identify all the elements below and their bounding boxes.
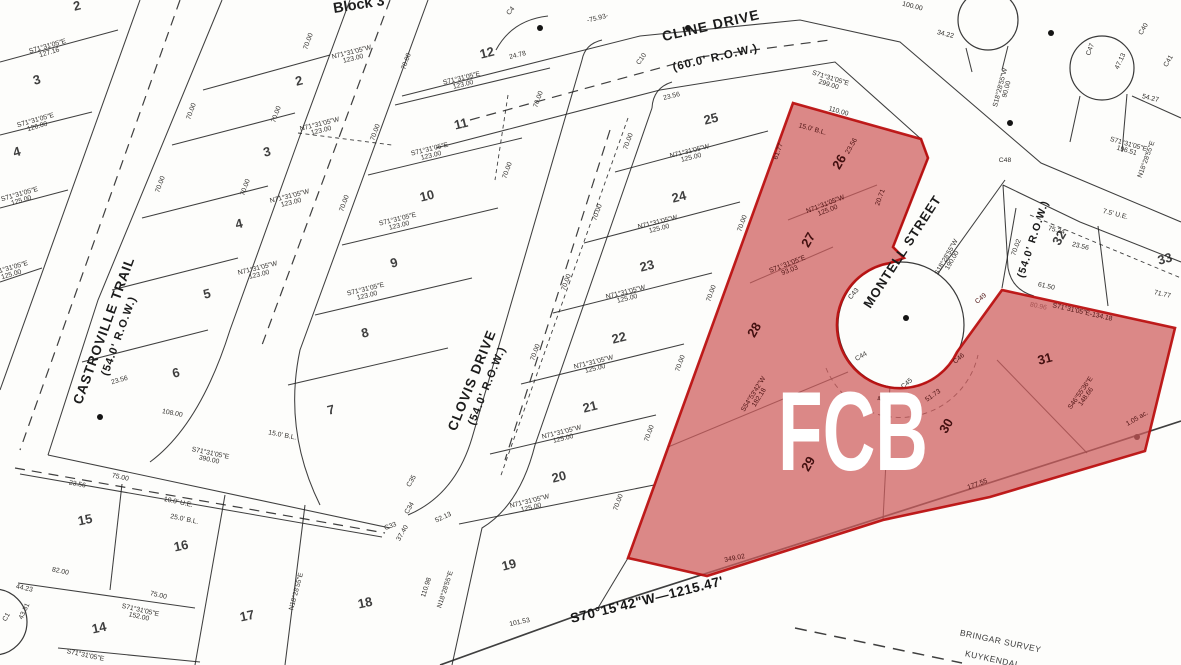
bearing-distance-label: 52.13 <box>434 511 453 525</box>
bearing-distance-label: S71°31'05"E123.00 <box>346 280 387 304</box>
lot-number: 17 <box>238 607 255 625</box>
bearing-distance-label: C47 <box>1085 42 1096 56</box>
cul-de-sac-bulb <box>1070 36 1134 100</box>
bearing-distance-label: S71°31'05"E126.00 <box>16 111 57 136</box>
bearing-distance-label: 70.00 <box>185 102 197 121</box>
bearing-distance-label: 7.5' U.E. <box>1102 208 1129 221</box>
lot-number: 20 <box>550 468 568 486</box>
lot-number: 12 <box>478 44 496 62</box>
bearing-distance-label: N18°28'55"E <box>287 571 305 611</box>
bearing-distance-label: S71°31'05"E152.00 <box>119 602 160 625</box>
bearing-distance-label: N71°31'05"W123.00 <box>269 187 312 211</box>
bearing-distance-label: 61.50 <box>1037 281 1055 291</box>
lot-number: 4 <box>234 215 245 231</box>
lot-number: 11 <box>452 115 469 133</box>
lot-number: 6 <box>171 364 182 380</box>
lot-boundary-line <box>966 48 972 72</box>
bearing-distance-label: N71°31'05"W125.00 <box>573 353 616 377</box>
lot-number: 2 <box>72 0 83 14</box>
bearing-distance-label: 70.00 <box>154 175 166 194</box>
bearing-distance-label: C10 <box>635 52 648 66</box>
bearing-distance-label: S71°31'05"E125.00 <box>0 259 31 284</box>
lot-number: 5 <box>202 285 213 301</box>
lot-number: 19 <box>500 556 518 574</box>
bearing-distance-label: 23.56 <box>1071 241 1089 252</box>
bearing-distance-label: 100.00 <box>901 1 923 13</box>
bearing-distance-label: N71°31'05"W123.00 <box>331 43 374 67</box>
lot-number: 22 <box>610 329 628 347</box>
lot-number: 23 <box>638 257 656 275</box>
lot-number: 21 <box>581 398 599 416</box>
bearing-distance-label: C4 <box>505 5 516 16</box>
boundary-bearing-label: S70°15'42"W—1215.47' <box>569 573 725 626</box>
lot-boundary-line <box>110 484 122 590</box>
bearing-distance-label: C34 <box>404 501 416 515</box>
bearing-distance-label: 70.00 <box>591 203 603 222</box>
bearing-distance-label: S71°31'05"E127.16 <box>28 37 69 62</box>
bearing-distance-label: 23.56 <box>68 479 86 489</box>
bearing-distance-label: 75.00 <box>111 472 129 482</box>
bearing-distance-label: N71°31'05"W125.00 <box>541 423 584 447</box>
bearing-distance-label: 37.40 <box>395 524 410 542</box>
bearing-distance-label: 70.00 <box>674 354 686 373</box>
bearing-distance-label: 70.00 <box>612 493 624 512</box>
street-row-cline: (60.0' R.O.W.) <box>672 42 760 73</box>
bearing-distance-label: N71°31'05"W125.00 <box>669 142 712 166</box>
bearing-distance-label: 108.00 <box>161 408 183 419</box>
bearing-distance-label: C40 <box>1138 22 1150 36</box>
survey-credit-line2: KUYKENDAL <box>964 648 1021 665</box>
bearing-distance-label: N18°28'55"E <box>435 569 455 609</box>
plat-map-page: S71°31'05"E127.16S71°31'05"E126.00S71°31… <box>0 0 1181 665</box>
plat-map: S71°31'05"E127.16S71°31'05"E126.00S71°31… <box>0 0 1181 665</box>
bearing-distance-label: C33 <box>383 521 397 532</box>
lot-number: 7 <box>326 401 337 417</box>
lot-boundary-line <box>195 495 225 665</box>
lot-boundary-line <box>315 278 472 315</box>
street-curve-line <box>496 16 548 50</box>
bearing-distance-label: 47.13 <box>1114 52 1128 71</box>
street-curve-line <box>295 0 428 505</box>
lot-number: 14 <box>90 619 108 637</box>
street-curve-line <box>408 60 582 515</box>
survey-monument-dot <box>1048 30 1054 36</box>
bearing-distance-label: 101.53 <box>509 617 531 628</box>
bearing-distance-label: 70.00 <box>400 52 412 71</box>
lot-boundary-line <box>1098 226 1108 306</box>
lot-boundary-line <box>1070 96 1080 142</box>
bearing-distance-label: 110.98 <box>420 577 433 599</box>
lot-number: 10 <box>418 187 436 205</box>
street-name-cline: CLINE DRIVE <box>661 6 762 44</box>
bearing-distance-label: 70.00 <box>529 343 541 362</box>
bearing-distance-label: 70.00 <box>622 132 634 151</box>
lot-boundary-line <box>1002 46 1008 70</box>
survey-monument-dot <box>97 414 103 420</box>
lot-number: 25 <box>702 110 720 128</box>
bearing-distance-label: 82.00 <box>51 566 69 576</box>
bearing-distance-label: C41 <box>1163 54 1175 68</box>
street-centerline-dashed <box>15 468 385 533</box>
street-centerline-dashed <box>20 0 180 450</box>
lot-boundary-line <box>18 583 195 608</box>
bearing-distance-label: C1 <box>1 612 12 623</box>
bearing-distance-label: S71°31'05"E <box>66 647 105 663</box>
bearing-distance-label: 70.00 <box>560 273 572 292</box>
bearing-distance-label: 70.00 <box>338 194 350 213</box>
bearing-distance-label: 70.00 <box>705 284 717 303</box>
lot-number: 2 <box>294 72 305 88</box>
bearing-distance-label: C35 <box>406 474 418 488</box>
bearing-distance-label: 23.56 <box>663 91 681 102</box>
lot-boundary-line <box>203 55 330 90</box>
bearing-distance-label: C48 <box>999 157 1012 164</box>
survey-monument-dot <box>537 25 543 31</box>
bearing-distance-label: N71°31'05"W123.00 <box>237 259 280 283</box>
bearing-distance-label: S71°31'05"E196.51 <box>1107 135 1148 160</box>
lot-boundary-line <box>342 208 498 245</box>
lot-number: 3 <box>262 143 273 159</box>
survey-monument-dot <box>1007 120 1013 126</box>
lot-number: 18 <box>356 594 373 612</box>
fcb-region-label: FCB <box>778 369 928 494</box>
bearing-distance-label: S71°31'05"E123.00 <box>442 69 483 93</box>
bearing-distance-label: 70.00 <box>501 161 513 180</box>
lot-boundary-line <box>48 455 390 528</box>
lot-number: 3 <box>31 71 42 87</box>
cul-de-sac-bulb <box>958 0 1018 50</box>
lot-number: 16 <box>172 537 189 555</box>
bearing-distance-label: S71°31'05"E299.00 <box>809 69 850 94</box>
lot-boundary-line <box>48 0 222 455</box>
survey-monument-dot <box>903 315 909 321</box>
bearing-distance-label: 70.00 <box>643 424 655 443</box>
street-row-montell: (54.0' R.O.W.) <box>1015 199 1051 279</box>
street-curve-line <box>150 0 350 462</box>
lot-boundary-line <box>288 348 448 385</box>
bearing-distance-label: 25.0' B.L. <box>170 513 199 526</box>
bearing-distance-label: 75.00 <box>149 590 167 601</box>
bearing-distance-label: S71°31'05"E390.00 <box>190 445 231 467</box>
bearing-distance-label: N71°31'05"W125.00 <box>637 213 680 237</box>
lot-number: 4 <box>11 143 23 160</box>
street-centerline-dashed <box>1030 215 1181 278</box>
lot-number: 15 <box>76 511 93 529</box>
lot-number: 33 <box>1156 250 1174 268</box>
lot-boundary-line <box>459 485 654 524</box>
bearing-distance-label: S18°28'55"W190.00 <box>933 237 966 279</box>
bearing-distance-label: 70.00 <box>239 178 251 197</box>
bearing-distance-label: 15.0' B.L. <box>268 429 297 441</box>
bearing-distance-label: C49 <box>974 292 988 306</box>
bearing-distance-label: 43.31 <box>18 602 32 621</box>
bearing-distance-label: -75.93- <box>586 13 609 25</box>
bearing-distance-label: 23.56 <box>110 375 128 386</box>
bearing-distance-label: N71°31'05"W125.00 <box>605 283 648 307</box>
bearing-distance-label: 70.00 <box>302 32 314 51</box>
bearing-distance-label: 24.78 <box>509 50 527 61</box>
bearing-distance-label: S71°31'05"E123.00 <box>378 210 419 234</box>
block-label: Block 3 <box>332 0 385 17</box>
street-centerline-dashed <box>795 628 962 663</box>
bearing-distance-label: 54.27 <box>1141 93 1159 104</box>
lot-number: 8 <box>360 324 371 340</box>
bearing-distance-label: 34.22 <box>936 29 954 40</box>
bearing-distance-label: 71.77 <box>1153 289 1171 300</box>
lot-boundary-line <box>490 415 656 454</box>
lot-number: 9 <box>389 254 400 270</box>
lot-number: 24 <box>670 187 688 205</box>
cul-de-sac-bulb <box>0 589 27 655</box>
bearing-distance-label: 70.00 <box>270 105 282 124</box>
bearing-distance-label: S18°28'55"W90.00 <box>991 67 1016 110</box>
